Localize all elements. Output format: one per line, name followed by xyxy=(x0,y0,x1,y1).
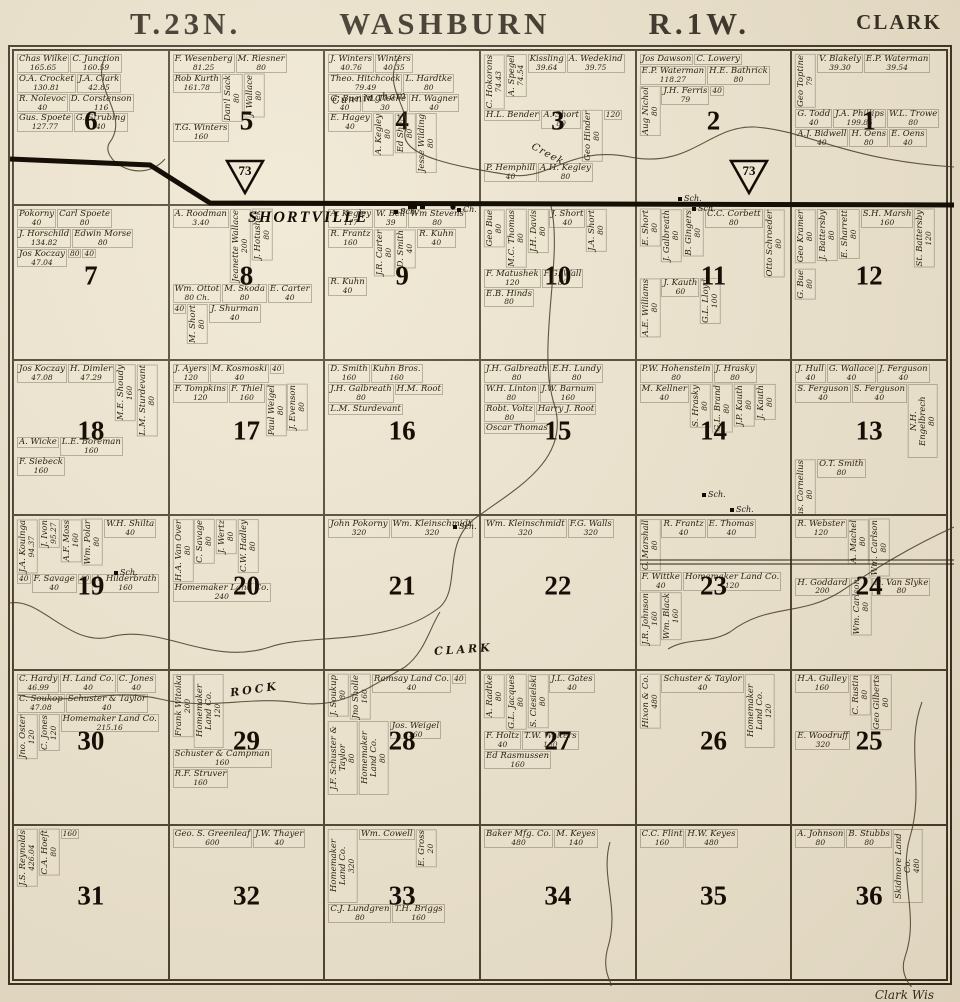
section-cell-25: H.A. Gulley160C. Rustin80Geo Gilberts80E… xyxy=(791,670,947,825)
acreage: 80 xyxy=(495,675,503,717)
parcel-label: 40 xyxy=(173,304,187,314)
acreage: 40 xyxy=(68,704,146,712)
parcel-label: Homemaker Land Co.120 xyxy=(683,572,781,591)
acreage: 30 xyxy=(364,104,406,112)
parcel-list: J.H. Galbreath80E.H. Lundy80W.H. Linton8… xyxy=(481,361,635,514)
parcel-label: 80 xyxy=(68,249,82,259)
parcel-label: C. Lowery xyxy=(694,54,742,65)
acreage: 39.30 xyxy=(819,64,861,72)
section-cell-20: H.A. Van Over80C. Savage80J. Wertz80C.W.… xyxy=(169,515,325,670)
acreage: 40 xyxy=(212,374,267,382)
parcel-label: N.H. Engelbrech80 xyxy=(908,384,938,458)
parcel-label: R. Nolevoc40 xyxy=(17,94,68,113)
section-cell-1: Geo Toptine79V. Blakely39.30E.P. Waterma… xyxy=(791,50,947,205)
acreage: 80 xyxy=(486,414,533,422)
acreage: 80 xyxy=(707,219,761,227)
acreage: 40 xyxy=(797,139,846,147)
parcel-label: Hixon & Co.480 xyxy=(640,674,661,729)
acreage: 80 xyxy=(486,394,537,402)
parcel-label: F. Holtz40 xyxy=(484,731,521,750)
acreage: 3.40 xyxy=(175,219,227,227)
parcel-list: C. Hokorons74.43A. Spegel74.54Kissling39… xyxy=(481,51,635,204)
acreage: 40 xyxy=(255,839,303,847)
section-cell-5: F. Wesenberg81.25M. Riesner80Rob Kurth16… xyxy=(169,50,325,205)
acreage: 80 xyxy=(405,84,452,92)
acreage: 40 xyxy=(551,684,592,692)
parcel-list: A. Radtke80G.L. Jacques80S. Ciesielski80… xyxy=(481,671,635,824)
parcel-label: G. Bue80 xyxy=(795,269,816,300)
acreage: 80 xyxy=(774,210,782,276)
acreage: 80 xyxy=(348,722,356,794)
parcel-list: A. Johnson80B. Stubbs80Skidmore Land Co.… xyxy=(792,826,946,979)
acreage: 80 xyxy=(597,210,605,251)
acreage: 80 xyxy=(694,210,702,256)
parcel-label: J.R. Johnson160 xyxy=(640,592,661,646)
acreage: 80 xyxy=(93,520,101,565)
parcel-label: C.J. Lundgren80 xyxy=(328,904,391,923)
section-cell-14: P.W. Hohenstein80J. Hrasky80M. Kellner40… xyxy=(636,360,792,515)
acreage: 80 xyxy=(59,219,110,227)
parcel-label: J. Winters40.76 xyxy=(328,54,374,73)
parcel-label: Ed Short80 xyxy=(395,113,416,153)
acreage: 80 xyxy=(227,520,235,553)
acreage: 80 xyxy=(539,675,547,727)
parcel-list: D. Smith160Kuhn Bros.160J.H. Galbreath80… xyxy=(325,361,479,514)
parcel-list: J. Hull40G. Wallace40J. Ferguson40S. Fer… xyxy=(792,361,946,514)
acreage: 80 xyxy=(851,139,886,147)
title-bar: T.23N. WASHBURN R.1W. CLARK xyxy=(0,4,960,44)
parcel-label: R.F. Struver160 xyxy=(173,769,229,788)
acreage: 480 xyxy=(651,675,659,728)
acreage: 120 xyxy=(28,715,36,758)
acreage: 160 xyxy=(373,374,421,382)
acreage: 80 xyxy=(238,64,285,72)
parcel-label: L.M. Sturdevant xyxy=(328,404,402,415)
parcel-label: A. Roodman3.40 xyxy=(173,209,229,228)
parcel-label: M. Keyes140 xyxy=(554,829,597,848)
parcel-label: F. Tompkins120 xyxy=(173,384,228,403)
parcel-label: Jno. Oster120 xyxy=(17,714,38,759)
parcel-label: Jeanette Wallace200 xyxy=(230,209,251,283)
section-cell-10: Geo Bue80M.C. Thomas80J.H. Davis80J. Sho… xyxy=(480,205,636,360)
acreage: 47.29 xyxy=(70,374,112,382)
section-cell-29: Frank Witoika200Homemaker Land Co.120Sch… xyxy=(169,670,325,825)
owner-name: Homemaker Land Co. xyxy=(196,675,214,747)
section-cell-4: J. Winters40.76Winters40.35Theo. Hitchco… xyxy=(324,50,480,205)
acreage: 80 xyxy=(148,365,156,435)
acreage: 215.16 xyxy=(63,724,157,732)
acreage: 40 xyxy=(84,250,94,258)
parcel-label: Schuster & Taylor40 xyxy=(66,694,148,713)
acreage: 79.49 xyxy=(330,84,400,92)
acreage: 160 xyxy=(126,365,134,420)
parcel-list: H.A. Gulley160C. Rustin80Geo Gilberts80E… xyxy=(792,671,946,824)
section-cell-26: Hixon & Co.480Schuster & Taylor40Homemak… xyxy=(636,670,792,825)
parcel-label: Wm. Cowell xyxy=(359,829,415,840)
parcel-label: W.H. Shilta40 xyxy=(104,519,156,538)
acreage: 40 xyxy=(272,365,282,373)
acreage: 117 xyxy=(330,219,371,227)
acreage: 80 xyxy=(384,114,392,155)
acreage: 80 xyxy=(298,385,306,430)
parcel-label: Pokorny40 xyxy=(17,209,56,228)
acreage: 80 xyxy=(672,210,680,261)
acreage: 80 xyxy=(495,210,503,246)
section-cell-16: D. Smith160Kuhn Bros.160J.H. Galbreath80… xyxy=(324,360,480,515)
acreage: 80 xyxy=(806,270,814,299)
parcel-label: Wm. Polar80 xyxy=(82,519,103,566)
parcel-label: 40 xyxy=(710,86,724,96)
acreage: 320 xyxy=(348,830,356,902)
parcel-label: J.P. Kauth80 xyxy=(734,384,755,427)
parcel-label: 40 xyxy=(270,364,284,374)
parcel-label: Oscar Thomas xyxy=(484,423,550,434)
map-footer: Clark Wis xyxy=(875,988,934,1002)
acreage: 199.85 xyxy=(835,119,884,127)
acreage: 40 xyxy=(891,139,924,147)
parcel-label: J.H. Ferris79 xyxy=(661,86,709,105)
acreage: 47.08 xyxy=(19,704,63,712)
parcel-label: R. Frantz160 xyxy=(328,229,372,248)
parcel-label: C. Jones120 xyxy=(39,714,60,751)
section-cell-15: J.H. Galbreath80E.H. Lundy80W.H. Linton8… xyxy=(480,360,636,515)
acreage: 40 xyxy=(62,684,113,692)
parcel-label: Jos Dawson xyxy=(640,54,694,65)
acreage: 39 xyxy=(376,219,405,227)
acreage: 46.99 xyxy=(19,684,57,692)
parcel-label: L.M. Sturdevant80 xyxy=(137,364,158,436)
owner-name: Chas. Cornelius xyxy=(797,460,806,515)
parcel-label: 40 xyxy=(452,674,466,684)
acreage: 80 xyxy=(540,173,591,181)
acreage: 39.64 xyxy=(530,64,564,72)
parcel-label: Geo Kramer80 xyxy=(795,209,816,263)
acreage: 160 xyxy=(394,914,442,922)
acreage: 80 xyxy=(874,587,928,595)
parcel-label: B. Gingers80 xyxy=(683,209,704,257)
acreage: 160 xyxy=(72,520,80,561)
parcel-label: W.L. Trowe80 xyxy=(887,109,939,128)
parcel-list: J. Winters40.76Winters40.35Theo. Hitchco… xyxy=(325,51,479,204)
parcel-label: Geo Toptine79 xyxy=(795,54,816,108)
parcel-label: J.A. Clark42.85 xyxy=(77,74,122,93)
acreage: 120 xyxy=(214,675,222,747)
section-cell-36: A. Johnson80B. Stubbs80Skidmore Land Co.… xyxy=(791,825,947,980)
parcel-label: O.T. Smith80 xyxy=(817,459,866,478)
parcel-label: Theo. Hitchcock79.49 xyxy=(328,74,402,93)
parcel-label: S. Ferguson40 xyxy=(795,384,850,403)
acreage: 80 xyxy=(850,210,858,258)
acreage: 40 xyxy=(34,584,75,592)
acreage: 160.59 xyxy=(72,64,119,72)
parcel-list: Wm. Kleinschmidt320F.G. Walls320 xyxy=(481,516,635,669)
acreage: 40 xyxy=(106,529,154,537)
acreage: 94.37 xyxy=(28,520,36,572)
acreage: 80 xyxy=(410,219,463,227)
acreage: 74.54 xyxy=(517,55,525,96)
acreage: 80 xyxy=(928,385,936,457)
parcel-label: Wm. Carlson80 xyxy=(851,578,872,636)
acreage: 600 xyxy=(175,839,250,847)
acreage: 40 xyxy=(642,394,687,402)
acreage: 160 xyxy=(672,593,680,639)
parcel-list: John Pokorny320Wm. Kleinschmidt320 xyxy=(325,516,479,669)
parcel-label: J. Hull40 xyxy=(795,364,825,383)
parcel-label: J. Horschild134.82 xyxy=(17,229,71,248)
parcel-label: 120 xyxy=(604,110,622,120)
acreage: 160 xyxy=(175,133,228,141)
parcel-label: J.H. Davis80 xyxy=(528,209,549,253)
parcel-label: C.C. Flint160 xyxy=(640,829,685,848)
parcel-label: J. Hrasky80 xyxy=(714,364,757,383)
acreage: 80 xyxy=(198,305,206,343)
acreage: 120 xyxy=(50,715,58,750)
plat-map-page: { "title": { "township": "T.23N.", "name… xyxy=(0,0,960,1002)
acreage: 81.25 xyxy=(175,64,233,72)
parcel-list: J. Ayers120M. Kosmoski4040F. Tompkins120… xyxy=(170,361,324,514)
map-title: WASHBURN xyxy=(339,6,550,42)
parcel-label: T.W. Walters160 xyxy=(522,731,578,750)
acreage: 130.81 xyxy=(19,84,74,92)
parcel-list: Jos DawsonC. LoweryE.P. Waterman118.27H.… xyxy=(637,51,791,204)
parcel-label: E.P. Waterman118.27 xyxy=(640,66,706,85)
parcel-label: Jos Koczay47.04 xyxy=(17,249,67,268)
acreage: 120 xyxy=(685,582,779,590)
acreage: 47.04 xyxy=(19,259,65,267)
acreage: 140 xyxy=(556,839,595,847)
parcel-label: D. Smith40 xyxy=(395,229,416,268)
acreage: 80 xyxy=(744,385,752,426)
parcel-label: A. Hilderbrath160 xyxy=(92,574,158,593)
acreage: 40 xyxy=(330,104,359,112)
acreage: 118.27 xyxy=(642,76,704,84)
plat-map: Chas Wilke165.65C. Junction160.59O.A. Cr… xyxy=(8,45,952,985)
parcel-label: A. Kegley117 xyxy=(328,209,373,228)
parcel-label: W.H. Linton80 xyxy=(484,384,539,403)
acreage: 80 xyxy=(486,298,532,306)
acreage: 40 xyxy=(709,529,754,537)
parcel-label: E. Sharrett80 xyxy=(839,209,860,259)
parcel-list: Geo Toptine79V. Blakely39.30E.P. Waterma… xyxy=(792,51,946,204)
parcel-label: P. Hemphill40 xyxy=(484,163,537,182)
section-cell-31: J.S. Reynolds426.04C.A. Hoeft8016031 xyxy=(13,825,169,980)
acreage: 40 xyxy=(486,741,519,749)
parcel-label: A.J. Bidwell40 xyxy=(795,129,848,148)
parcel-list: Chas Wilke165.65C. Junction160.59O.A. Cr… xyxy=(14,51,168,204)
acreage: 80 xyxy=(384,230,392,275)
acreage: 47.08 xyxy=(19,374,65,382)
parcel-label: Schuster & Taylor40 xyxy=(661,674,743,693)
section-cell-23: O. Marshall80R. Frantz40E. Thomas40F. Wi… xyxy=(636,515,792,670)
parcel-label: Jos. Weigel160 xyxy=(390,721,441,740)
acreage: 80 xyxy=(709,76,768,84)
parcel-label: J.A. Phillips199.85 xyxy=(833,109,886,128)
parcel-label: G. Bue40 xyxy=(328,94,361,113)
acreage: 161.78 xyxy=(175,84,219,92)
parcel-list: Pokorny40Carl Spoete80J. Horschild134.82… xyxy=(14,206,168,359)
section-cell-17: J. Ayers120M. Kosmoski4040F. Tompkins120… xyxy=(169,360,325,515)
acreage: 40 xyxy=(211,314,259,322)
section-cell-30: C. Hardy46.99H. Land Co.40C. Jones40C. S… xyxy=(13,670,169,825)
acreage: 80 xyxy=(276,385,284,435)
acreage: 80 xyxy=(255,75,263,117)
section-cell-21: John Pokorny320Wm. Kleinschmidt32021 xyxy=(324,515,480,670)
acreage: 80 xyxy=(224,294,265,302)
parcel-label: Chas. Cornelius80 xyxy=(795,459,816,515)
acreage: 127.77 xyxy=(19,123,71,131)
acreage: 40 xyxy=(270,294,310,302)
owner-name: Wm. Cowell xyxy=(361,830,413,839)
acreage: 120 xyxy=(764,675,772,747)
section-cell-18: Jos Koczay47.08H. Dimler47.29M.E. Shoudy… xyxy=(13,360,169,515)
parcel-label: J.H. Galbreath80 xyxy=(484,364,549,383)
acreage: 80 xyxy=(828,210,836,260)
acreage: 80 xyxy=(806,210,814,262)
section-cell-9: A. Kegley117W. Bell39Wm Stevens80R. Fran… xyxy=(324,205,480,360)
acreage: 40 xyxy=(797,394,848,402)
parcel-label: R. Frantz40 xyxy=(661,519,705,538)
parcel-label: F. Thiel160 xyxy=(229,384,265,403)
acreage: 80 xyxy=(593,111,601,161)
acreage: 160 xyxy=(542,394,595,402)
parcel-label: J.H. Galbreath80 xyxy=(328,384,393,403)
parcel-label: A. Wedekind39.75 xyxy=(567,54,625,73)
parcel-label: F. Savage40 xyxy=(32,574,77,593)
acreage: 40 xyxy=(374,684,449,692)
acreage: 80 xyxy=(651,279,659,336)
parcel-label: R. Kuhn40 xyxy=(417,229,455,248)
parcel-label: Rob Kurth161.78 xyxy=(173,74,221,93)
parcel-label: Paul Weigel80 xyxy=(266,384,287,436)
parcel-label: H. Dimler47.29 xyxy=(68,364,114,383)
parcel-label: J. Soukup80 xyxy=(328,674,349,717)
parcel-list: Jos Koczay47.08H. Dimler47.29M.E. Shoudy… xyxy=(14,361,168,514)
acreage: 80 xyxy=(860,675,868,714)
parcel-label: Dan'l Sack80 xyxy=(222,74,243,122)
parcel-list: Geo Bue80M.C. Thomas80J.H. Davis80J. Sho… xyxy=(481,206,635,359)
parcel-label: John Pokorny320 xyxy=(328,519,389,538)
parcel-label: Homemaker Land Co.320 xyxy=(328,829,358,903)
parcel-label: G.L. Lloyd100 xyxy=(700,278,721,324)
parcel-label: 40 xyxy=(82,249,96,259)
acreage: 160 xyxy=(231,394,263,402)
acreage: 74.43 xyxy=(495,55,503,108)
parcel-label: 160 xyxy=(61,829,79,839)
owner-name: N.H. Engelbrech xyxy=(910,385,928,457)
acreage: 200 xyxy=(241,210,249,282)
acreage: 320 xyxy=(330,529,387,537)
owner-name: A. Wicke xyxy=(19,438,57,447)
acreage: 40 xyxy=(854,394,905,402)
parcel-label: Skidmore Land Co.480 xyxy=(893,829,923,903)
parcel-label: F. Siebeck160 xyxy=(17,457,65,476)
parcel-label: Kissling39.64 xyxy=(528,54,566,73)
parcel-label: G. Strubing40 xyxy=(74,113,128,132)
parcel-label: C. Junction160.59 xyxy=(70,54,121,73)
acreage: 40 xyxy=(454,675,464,683)
acreage: 120 xyxy=(797,529,844,537)
owner-name: C. Lowery xyxy=(696,55,740,64)
parcel-label: F. Matushek120 xyxy=(484,269,541,288)
acreage: 40 xyxy=(797,119,830,127)
parcel-label: G.L. Brand80 xyxy=(712,384,733,433)
parcel-label: A.E. Williams80 xyxy=(640,278,661,337)
parcel-label: Geo Gilberts80 xyxy=(871,674,892,730)
parcel-label: C. Savage80 xyxy=(194,519,215,564)
parcel-label: S. Ciesielski80 xyxy=(528,674,549,728)
acreage: 160 xyxy=(63,830,77,838)
parcel-label: C.C. Corbett80 xyxy=(705,209,763,228)
acreage: 80 xyxy=(544,279,582,287)
owner-name: H.L. Bender xyxy=(486,111,538,120)
parcel-label: H. Wagner40 xyxy=(409,94,459,113)
acreage: 120 xyxy=(175,394,226,402)
acreage: 320 xyxy=(486,529,565,537)
acreage: 120 xyxy=(606,111,620,119)
parcel-label: J. Wertz80 xyxy=(216,519,237,554)
parcel-label: H.M. Root xyxy=(395,384,443,395)
owner-name: Harry J. Root xyxy=(538,405,594,414)
acreage: 80 xyxy=(517,210,525,267)
section-cell-27: A. Radtke80G.L. Jacques80S. Ciesielski80… xyxy=(480,670,636,825)
parcel-list: C.C. Flint160H.W. Keyes480 xyxy=(637,826,791,979)
section-cell-8: A. Roodman3.40Jeanette Wallace200J. Hotu… xyxy=(169,205,325,360)
acreage: 80 xyxy=(716,374,755,382)
acreage: 40 xyxy=(175,305,185,313)
parcel-list: Geo. S. Greenleaf600J.W. Thayer40 xyxy=(170,826,324,979)
parcel-label: Geo Bue80 xyxy=(484,209,505,247)
acreage: 160 xyxy=(175,759,270,767)
parcel-label: L.E. Boreman160 xyxy=(60,437,123,456)
section-cell-33: Homemaker Land Co.320Wm. CowellE. Gross2… xyxy=(324,825,480,980)
parcel-label: R. Webster120 xyxy=(795,519,846,538)
acreage: 40.76 xyxy=(330,64,372,72)
acreage: 160 xyxy=(361,675,369,719)
parcel-label: F. Wittke40 xyxy=(640,572,682,591)
parcel-list: C. Hardy46.99H. Land Co.40C. Jones40C. S… xyxy=(14,671,168,824)
parcel-label: J.W. Barnum160 xyxy=(540,384,597,403)
owner-name: Homemaker Land Co. xyxy=(747,675,765,747)
range-label: R.1W. xyxy=(648,6,750,42)
acreage: 40 xyxy=(663,529,703,537)
acreage: 160 xyxy=(19,467,63,475)
acreage: 200 xyxy=(184,675,192,736)
parcel-label: J. Short40 xyxy=(549,209,585,228)
parcel-label: A. Spegel74.54 xyxy=(506,54,527,97)
parcel-label: M.C. Thomas80 xyxy=(506,209,527,268)
acreage: 80 xyxy=(539,210,547,252)
parcel-label: Kuhn Bros.160 xyxy=(371,364,423,383)
parcel-label: D. Corstenson116 xyxy=(69,94,134,113)
acreage: 240 xyxy=(175,593,269,601)
parcel-label: J.A. Koulnga94.37 xyxy=(17,519,38,573)
acreage: 40 xyxy=(19,104,66,112)
acreage: 40 xyxy=(76,123,126,131)
parcel-label: E. Short80 xyxy=(640,209,661,247)
section-cell-35: C.C. Flint160H.W. Keyes48035 xyxy=(636,825,792,980)
acreage: 80 xyxy=(330,914,389,922)
acreage: 80 xyxy=(205,520,213,563)
acreage: 95.27 xyxy=(50,520,58,547)
parcel-label: E.H. Lundy80 xyxy=(550,364,603,383)
acreage: 80 xyxy=(861,579,869,635)
parcel-label: A. Kegley80 xyxy=(373,113,394,156)
county-label: CLARK xyxy=(856,10,942,35)
parcel-label: Otto Schroeder80 xyxy=(764,209,785,277)
parcel-label: W. Bell39 xyxy=(374,209,407,228)
acreage: 79 xyxy=(806,55,814,107)
acreage: 80 xyxy=(819,469,864,477)
